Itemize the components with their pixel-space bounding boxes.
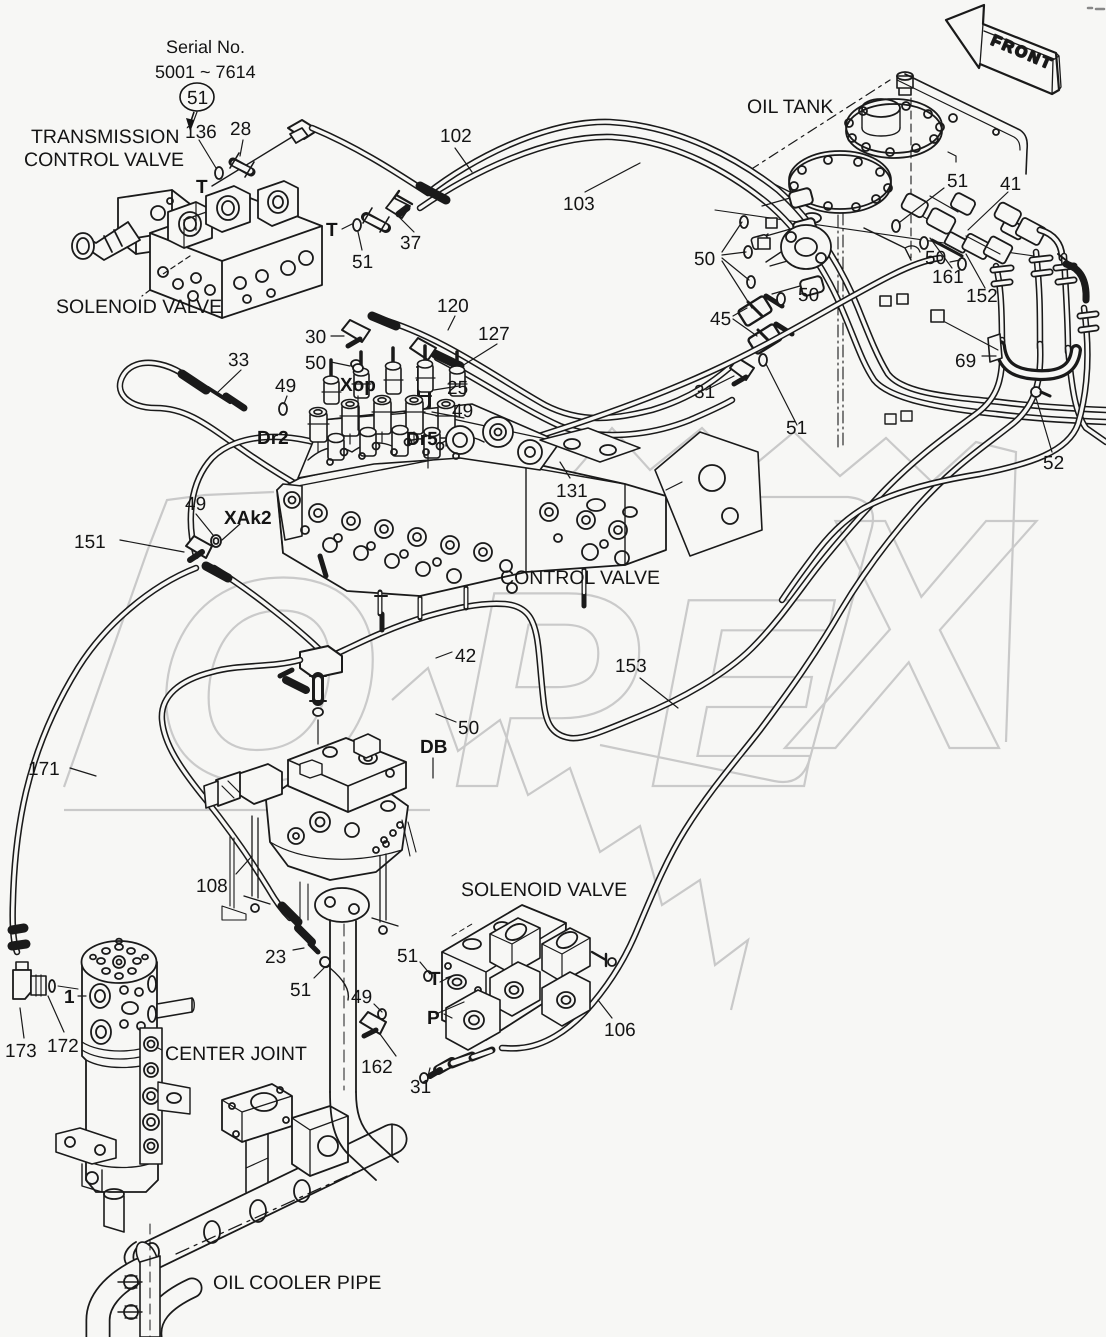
svg-text:23: 23: [265, 947, 286, 968]
svg-text:127: 127: [478, 324, 510, 345]
svg-text:XAk2: XAk2: [224, 508, 272, 529]
svg-text:49: 49: [351, 987, 372, 1008]
svg-text:106: 106: [604, 1020, 636, 1041]
svg-text:51: 51: [397, 946, 418, 967]
svg-text:69: 69: [955, 351, 976, 372]
svg-text:172: 172: [47, 1036, 79, 1057]
svg-text:151: 151: [74, 532, 106, 553]
svg-text:Dr2: Dr2: [257, 428, 289, 449]
svg-text:50: 50: [925, 248, 946, 269]
svg-text:108: 108: [196, 876, 228, 897]
svg-text:51: 51: [786, 418, 807, 439]
svg-text:P: P: [427, 1008, 440, 1029]
svg-text:171: 171: [28, 759, 60, 780]
svg-text:136: 136: [185, 122, 217, 143]
svg-text:25: 25: [447, 378, 468, 399]
svg-text:SOLENOID VALVE: SOLENOID VALVE: [461, 879, 627, 901]
svg-text:45: 45: [710, 309, 731, 330]
svg-text:T: T: [326, 220, 338, 241]
svg-text:5001 ~ 7614: 5001 ~ 7614: [155, 62, 256, 82]
svg-text:49: 49: [452, 401, 473, 422]
svg-text:51: 51: [290, 980, 311, 1001]
svg-text:31: 31: [694, 382, 715, 403]
svg-text:173: 173: [5, 1041, 37, 1062]
svg-text:51: 51: [352, 252, 373, 273]
svg-text:50: 50: [458, 718, 479, 739]
svg-text:Xop: Xop: [340, 375, 376, 396]
svg-text:T: T: [429, 969, 441, 990]
svg-text:Serial No.: Serial No.: [166, 37, 245, 57]
svg-text:37: 37: [400, 233, 421, 254]
svg-text:49: 49: [275, 376, 296, 397]
svg-text:152: 152: [966, 286, 998, 307]
svg-text:103: 103: [563, 194, 595, 215]
svg-text:161: 161: [932, 267, 964, 288]
svg-text:1: 1: [64, 987, 75, 1008]
svg-text:SOLENOID VALVE: SOLENOID VALVE: [56, 296, 222, 318]
svg-text:DB: DB: [420, 737, 447, 758]
svg-text:49: 49: [185, 494, 206, 515]
svg-text:30: 30: [305, 327, 326, 348]
svg-text:102: 102: [440, 126, 472, 147]
svg-text:OIL TANK: OIL TANK: [747, 96, 833, 118]
svg-text:50: 50: [798, 285, 819, 306]
svg-text:131: 131: [556, 481, 588, 502]
svg-text:OIL COOLER PIPE: OIL COOLER PIPE: [213, 1272, 381, 1294]
svg-text:41: 41: [1000, 174, 1021, 195]
svg-text:CONTROL VALVE: CONTROL VALVE: [24, 149, 184, 171]
svg-text:31: 31: [410, 1077, 431, 1098]
svg-text:CONTROL VALVE: CONTROL VALVE: [500, 567, 660, 589]
svg-text:50: 50: [694, 249, 715, 270]
svg-text:52: 52: [1043, 453, 1064, 474]
svg-text:TRANSMISSION: TRANSMISSION: [31, 126, 179, 148]
svg-text:51: 51: [947, 171, 968, 192]
svg-text:153: 153: [615, 656, 647, 677]
svg-text:162: 162: [361, 1057, 393, 1078]
svg-text:X: X: [785, 449, 1038, 818]
svg-text:CENTER JOINT: CENTER JOINT: [165, 1043, 307, 1065]
svg-text:Dr5: Dr5: [406, 429, 438, 450]
svg-text:51: 51: [187, 88, 208, 109]
svg-text:50: 50: [305, 353, 326, 374]
svg-text:33: 33: [228, 350, 249, 371]
svg-text:42: 42: [455, 646, 476, 667]
svg-text:120: 120: [437, 296, 469, 317]
svg-text:28: 28: [230, 119, 251, 140]
svg-text:T: T: [196, 177, 208, 198]
